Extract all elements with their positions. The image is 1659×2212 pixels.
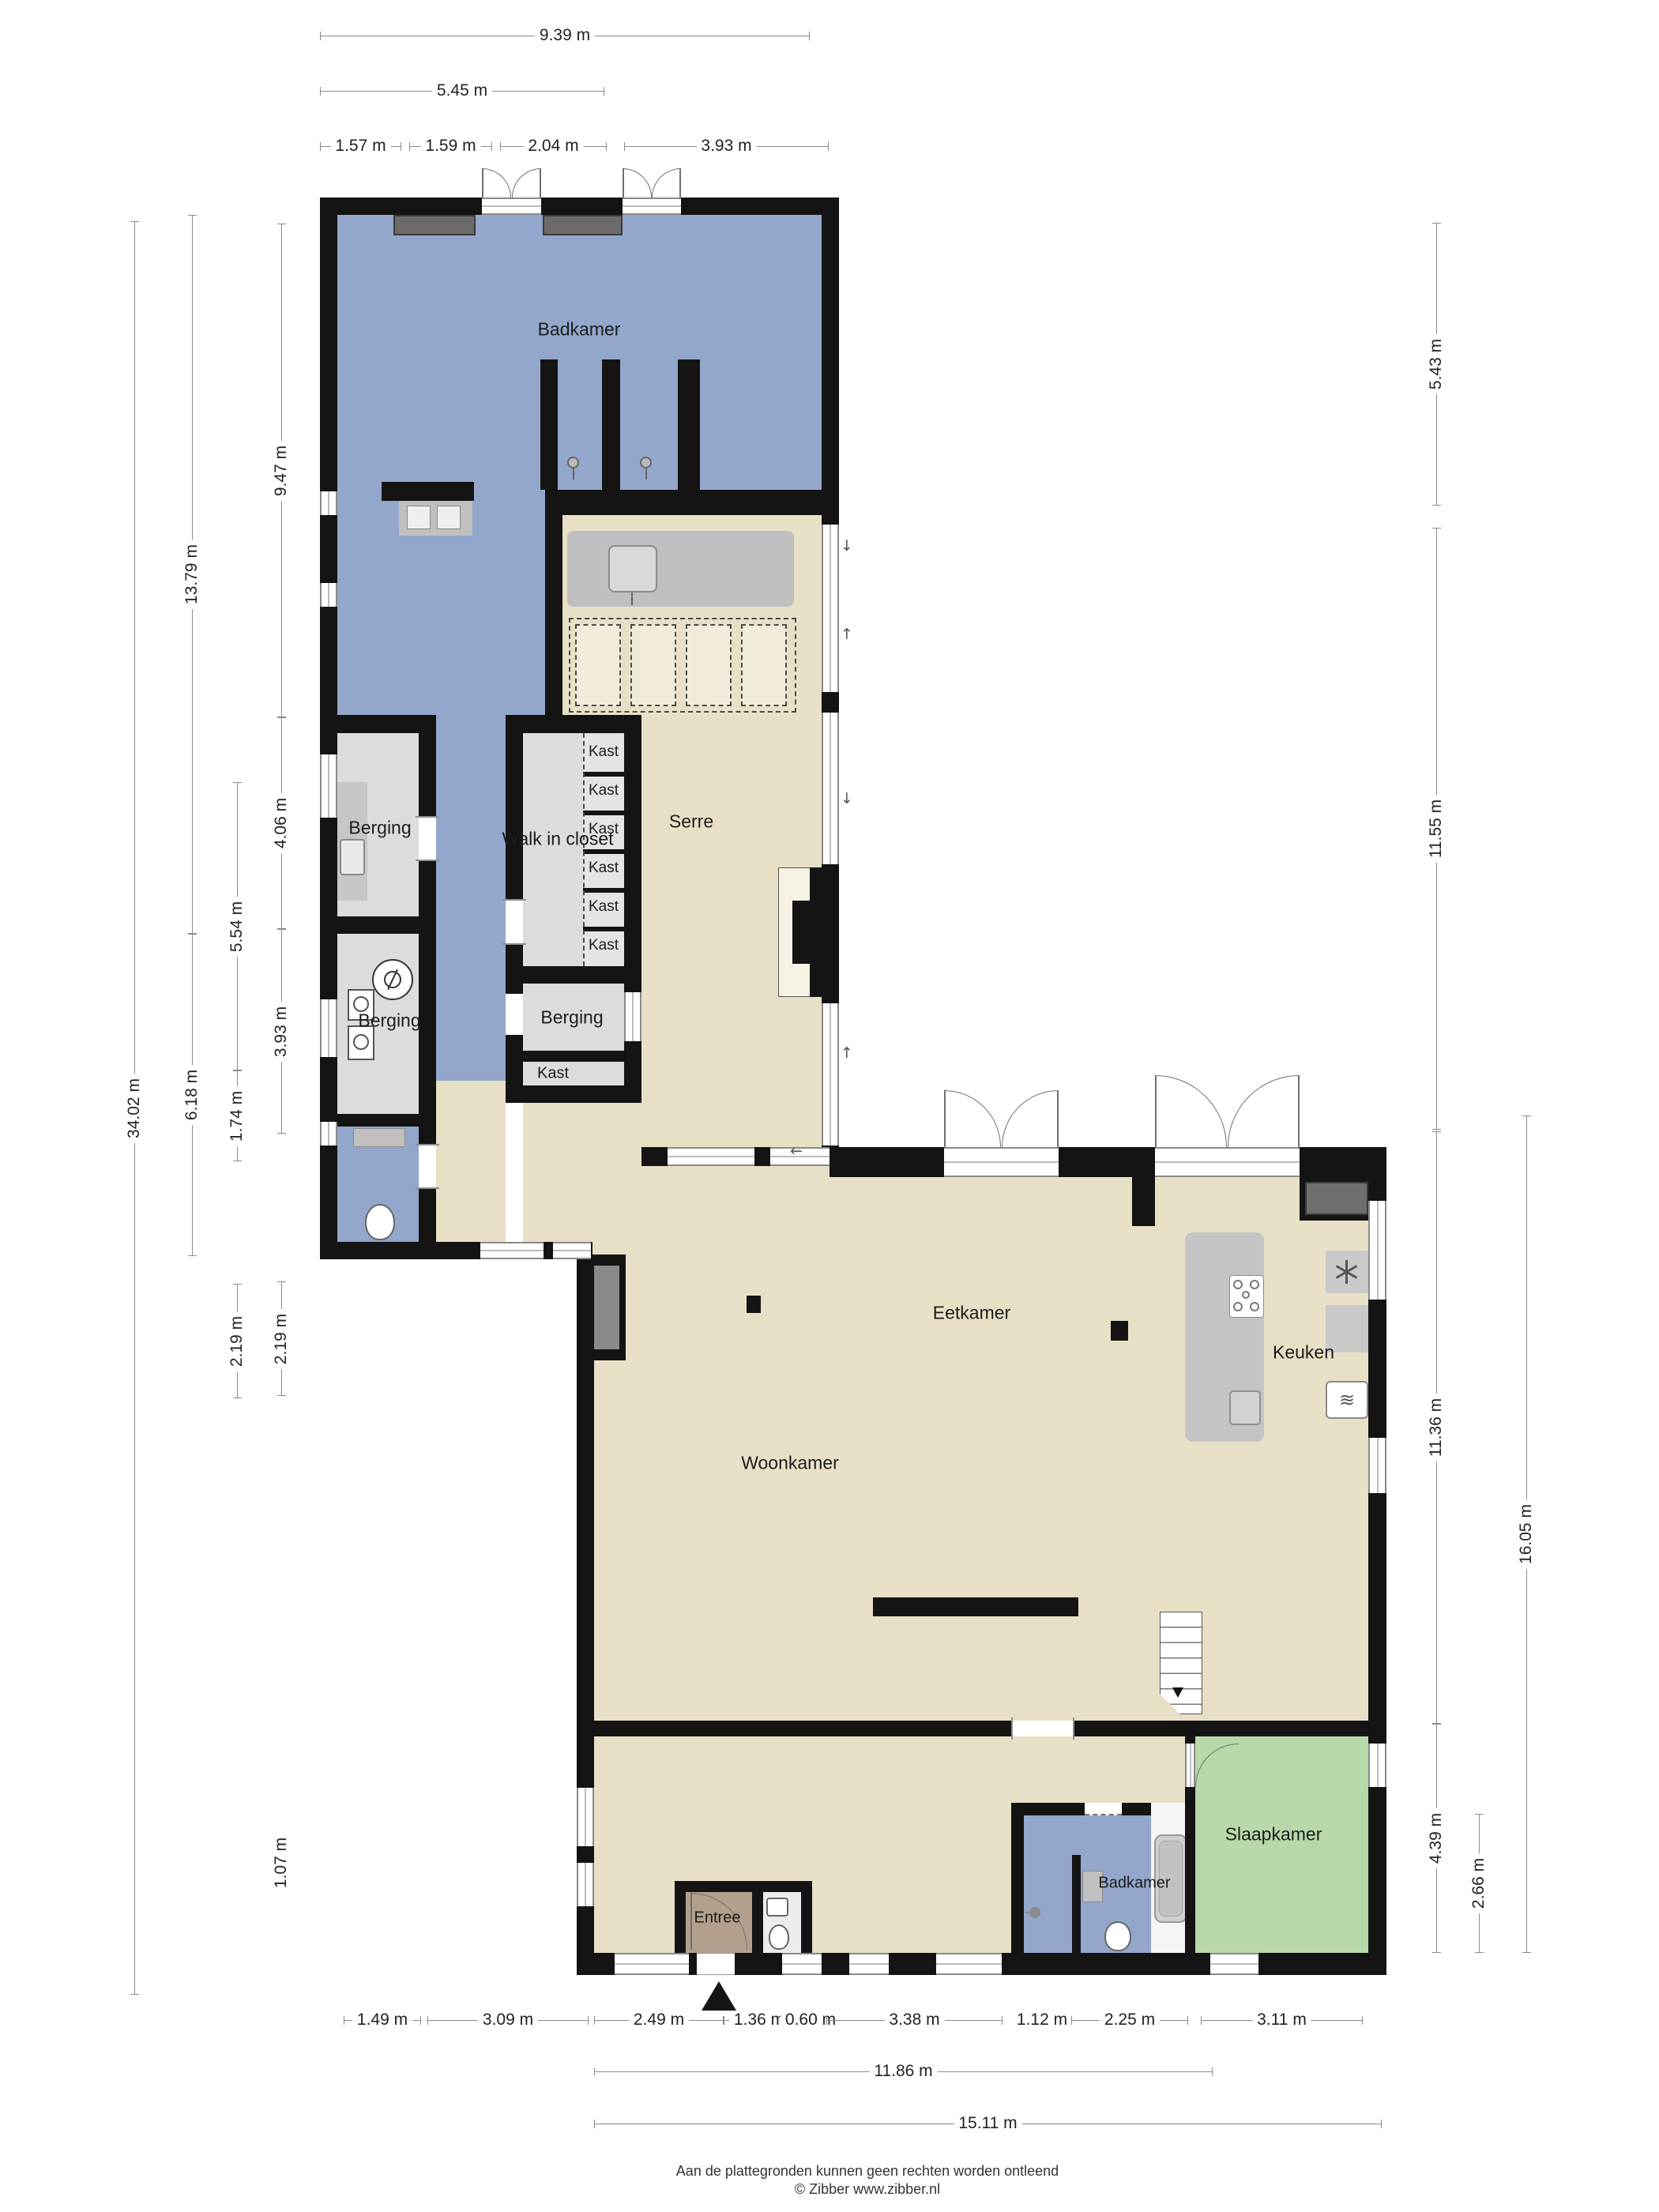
wall-kastcell-sep-5 xyxy=(583,927,624,931)
toilet-upper-bowl xyxy=(365,1204,395,1240)
wall-left-upper xyxy=(320,215,337,1259)
window-upper-bottom-1 xyxy=(480,1242,544,1259)
stall-faucet-stem-2 xyxy=(645,468,647,480)
label-serre: Serre xyxy=(669,811,713,833)
wc-sink-icon xyxy=(766,1898,788,1917)
wall-kastcell-sep-2 xyxy=(583,811,624,815)
stall-faucet-2 xyxy=(640,457,652,468)
wall-berging3-left-b xyxy=(506,1035,523,1051)
burner-1-icon xyxy=(1233,1280,1243,1289)
stairs xyxy=(1160,1612,1202,1714)
burner-3-icon xyxy=(1233,1302,1243,1311)
window-slaapkamer-right xyxy=(1368,1744,1386,1787)
window-lower-left-2 xyxy=(577,1863,594,1906)
window-left-1 xyxy=(320,491,337,515)
serre-closet-cell-2 xyxy=(630,624,676,706)
vanity-sink-2 xyxy=(437,506,461,529)
room-badkamer-top-left xyxy=(337,515,545,715)
wall-stall-1 xyxy=(540,359,558,490)
wall-entree-left xyxy=(675,1892,686,1953)
serre-closet-cell-3 xyxy=(686,624,732,706)
wall-divider-woonkamer xyxy=(873,1597,1078,1616)
door-slaapkamer xyxy=(1185,1744,1195,1787)
stall-faucet-1 xyxy=(567,457,579,468)
window-keuken-right-1 xyxy=(1368,1201,1386,1300)
wall-berging3-bottom xyxy=(506,1051,641,1062)
label-berging-3: Berging xyxy=(540,1007,603,1029)
window-arrow-up-2: ↑ xyxy=(841,1044,853,1062)
column-1 xyxy=(747,1296,761,1313)
door-top-2-opening xyxy=(623,197,681,215)
label-kast-room: Kast xyxy=(537,1065,569,1083)
wall-serre-left xyxy=(545,515,562,715)
front-door-threshold xyxy=(697,1953,735,1975)
wall-berging3-left-a xyxy=(506,984,523,994)
wall-wic-top xyxy=(506,715,641,733)
berging1-sink xyxy=(340,839,365,875)
wall-toilet-right-b xyxy=(419,1189,436,1242)
wall-wic-right-a xyxy=(624,715,641,992)
label-badkamer-top: Badkamer xyxy=(538,319,621,340)
window-upper-bottom-2 xyxy=(553,1242,591,1259)
stairs-arrow-icon xyxy=(1172,1687,1183,1698)
wall-kast-left xyxy=(506,1062,523,1085)
wc-toilet-icon xyxy=(769,1924,789,1950)
door-arc-top-2-left xyxy=(623,168,652,197)
label-kast-6: Kast xyxy=(589,937,619,954)
wall-berging1-right-a xyxy=(419,715,436,818)
window-arrow-down-2: ↓ xyxy=(841,790,853,807)
oven-icon: ≋ xyxy=(1326,1381,1368,1419)
door-toilet-upper xyxy=(419,1145,436,1189)
wall-badkamer2-left xyxy=(1011,1815,1024,1953)
floor-plan: ≋ xyxy=(0,0,1659,2212)
wall-vanity-stub xyxy=(382,482,474,501)
wall-top-2 xyxy=(541,197,623,215)
label-slaapkamer: Slaapkamer xyxy=(1225,1824,1322,1845)
burner-4-icon xyxy=(1250,1302,1259,1311)
window-left-3 xyxy=(320,754,337,818)
window-left-4 xyxy=(320,999,337,1057)
wall-toilet-top xyxy=(320,1114,436,1127)
wall-bath-serre xyxy=(545,490,822,515)
island-sink xyxy=(1229,1390,1261,1425)
shower-arm-icon xyxy=(1025,1912,1036,1913)
window-bottom-4 xyxy=(936,1953,1002,1975)
wall-serre-band-1 xyxy=(641,1147,668,1166)
burner-2-icon xyxy=(1250,1280,1259,1289)
opening-badkamer2 xyxy=(1085,1803,1122,1815)
door-arc-lower-2-left xyxy=(1155,1075,1227,1147)
window-bottom-slaapkamer xyxy=(1210,1953,1258,1975)
wall-berging-sep xyxy=(320,916,436,934)
room-hall xyxy=(436,1081,506,1242)
door-lower-1-opening xyxy=(944,1147,1059,1177)
label-keuken: Keuken xyxy=(1273,1342,1334,1364)
wall-serre-band-2 xyxy=(754,1147,770,1166)
door-arc-top-1-left xyxy=(482,168,511,197)
serre-sliding-door xyxy=(668,1147,754,1166)
label-berging-1: Berging xyxy=(348,818,411,839)
door-arc-lower-1-left xyxy=(944,1090,1001,1147)
label-woonkamer: Woonkamer xyxy=(741,1453,839,1474)
wall-kastcell-sep-1 xyxy=(583,772,624,777)
window-left-2 xyxy=(320,583,337,607)
column-2 xyxy=(1111,1321,1128,1341)
label-entree: Entree xyxy=(694,1909,741,1928)
serre-counter-sink xyxy=(608,545,657,592)
window-arrow-down-1: ↓ xyxy=(841,537,853,555)
serre-counter xyxy=(567,531,794,607)
room-corridor-blue xyxy=(436,715,506,1081)
badkamer2-toilet xyxy=(1104,1921,1131,1951)
wall-bottom-upper-block xyxy=(320,1242,592,1259)
wall-wic-left-b xyxy=(506,945,523,966)
burner-5-icon xyxy=(1242,1291,1250,1299)
label-kast-1: Kast xyxy=(589,743,619,761)
window-bottom-3 xyxy=(849,1953,889,1975)
door-arc-lower-2-right xyxy=(1228,1075,1300,1147)
door-berging1 xyxy=(419,818,436,861)
room-badkamer-top xyxy=(337,215,822,515)
door-arc-top-1-right xyxy=(512,168,541,197)
wall-stall-3 xyxy=(678,359,700,490)
wall-kast-bottom xyxy=(506,1085,641,1103)
wall-berging2-right xyxy=(419,934,436,1127)
wall-badkamer2-top-b xyxy=(1122,1803,1151,1815)
footer-credit: © Zibber www.zibber.nl xyxy=(795,2181,940,2198)
window-bottom-1 xyxy=(615,1953,689,1975)
serre-closet-cell-4 xyxy=(741,624,787,706)
window-serre-right-1 xyxy=(822,525,839,692)
window-keuken-right-2 xyxy=(1368,1438,1386,1493)
footer-disclaimer: Aan de plattegronden kunnen geen rechten… xyxy=(676,2163,1059,2180)
door-lower-2-opening xyxy=(1155,1147,1300,1177)
opening-woonkamer-hal xyxy=(1011,1721,1074,1736)
wall-entree-right xyxy=(801,1892,812,1953)
label-badkamer-beneden: Badkamer xyxy=(1098,1875,1170,1893)
door-top-1-opening xyxy=(482,197,541,215)
window-left-5 xyxy=(320,1122,337,1145)
door-berging3 xyxy=(506,994,523,1035)
wall-a-right xyxy=(1074,1721,1386,1736)
wall-entree-mid xyxy=(752,1892,763,1953)
wall-kastcell-sep-3 xyxy=(583,849,624,854)
entrance-marker-icon xyxy=(702,1981,736,2011)
serre-sink-tap xyxy=(631,592,633,605)
corner-cabinet xyxy=(1305,1182,1368,1215)
wall-a-left xyxy=(594,1721,1011,1736)
label-kast-2: Kast xyxy=(589,782,619,799)
window-arrow-left-1: ← xyxy=(790,1142,803,1160)
door-walk-in-closet xyxy=(506,901,523,945)
wall-lower-top-stub xyxy=(1132,1177,1155,1226)
door-berging3-serre xyxy=(624,992,641,1041)
window-serre-right-3 xyxy=(822,1003,839,1145)
wall-badkamer2-top-a xyxy=(1011,1803,1085,1815)
window-lower-left-1 xyxy=(577,1788,594,1846)
window-bottom-2 xyxy=(782,1953,822,1975)
wall-cabinet-top-1 xyxy=(393,215,476,235)
stall-faucet-stem-1 xyxy=(573,468,574,480)
dryer-drum-icon xyxy=(353,1034,369,1050)
wall-stall-2 xyxy=(602,359,620,490)
label-berging-2: Berging xyxy=(358,1010,420,1032)
toilet-upper-vanity xyxy=(353,1128,405,1147)
label-kast-5: Kast xyxy=(589,898,619,916)
wall-lower-top-mid xyxy=(1059,1147,1155,1177)
wall-wic-left-a xyxy=(506,733,523,901)
label-kast-4: Kast xyxy=(589,860,619,877)
wall-toilet-right-a xyxy=(419,1127,436,1145)
wall-top-3 xyxy=(681,197,839,215)
window-serre-right-2 xyxy=(822,713,839,864)
wall-badkamer2-stub xyxy=(1072,1855,1081,1953)
wall-wic-bottom xyxy=(506,966,641,984)
wall-top-1 xyxy=(320,197,482,215)
window-arrow-up-1: ↑ xyxy=(841,626,853,643)
wall-cabinet-top-2 xyxy=(543,215,623,235)
wall-slaapkamer-left-a xyxy=(1185,1736,1195,1744)
fireplace-body xyxy=(810,867,839,997)
label-eetkamer: Eetkamer xyxy=(933,1303,1010,1324)
label-kast-3: Kast xyxy=(589,821,619,838)
door-arc-top-2-right xyxy=(652,168,681,197)
wall-entree-top xyxy=(675,1881,812,1892)
wall-kastcell-sep-4 xyxy=(583,888,624,893)
wall-slaapkamer-left-b xyxy=(1185,1787,1195,1953)
wic-dashed-line xyxy=(583,733,585,966)
wall-lower-corner-tl xyxy=(829,1147,944,1177)
door-arc-lower-1-right xyxy=(1002,1090,1059,1147)
vanity-sink-1 xyxy=(407,506,431,529)
serre-closet-cell-1 xyxy=(575,624,621,706)
fireplace-step xyxy=(792,901,810,964)
